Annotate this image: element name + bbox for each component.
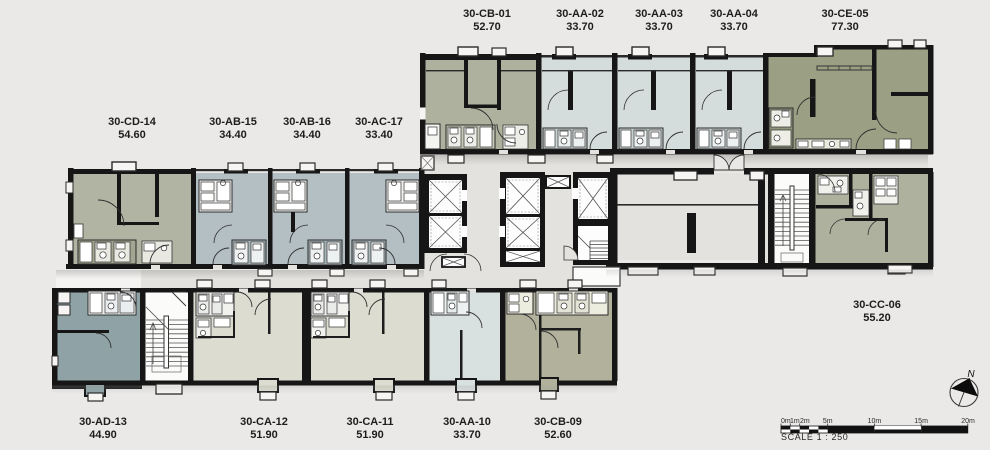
svg-text:30-CE-05: 30-CE-05 [821, 8, 868, 20]
svg-text:10m: 10m [868, 418, 882, 425]
svg-text:54.60: 54.60 [118, 129, 146, 141]
svg-text:30-AA-03: 30-AA-03 [635, 8, 683, 20]
svg-text:30-AB-15: 30-AB-15 [209, 116, 257, 128]
svg-text:30-CA-12: 30-CA-12 [240, 416, 288, 428]
svg-text:33.70: 33.70 [645, 21, 673, 33]
svg-text:30-AD-13: 30-AD-13 [79, 416, 127, 428]
svg-text:30-CA-11: 30-CA-11 [346, 416, 393, 428]
svg-text:30-AA-02: 30-AA-02 [556, 8, 604, 20]
svg-text:20m: 20m [961, 418, 975, 425]
svg-text:33.70: 33.70 [720, 21, 748, 33]
svg-text:5m: 5m [823, 418, 833, 425]
svg-text:51.90: 51.90 [356, 429, 384, 441]
svg-text:2m: 2m [800, 418, 810, 425]
svg-text:30-AB-16: 30-AB-16 [283, 116, 331, 128]
svg-text:30-AC-17: 30-AC-17 [355, 116, 403, 128]
svg-text:55.20: 55.20 [863, 312, 891, 324]
svg-text:34.40: 34.40 [219, 129, 247, 141]
svg-text:30-CB-09: 30-CB-09 [534, 416, 582, 428]
svg-text:77.30: 77.30 [831, 21, 859, 33]
svg-text:15m: 15m [914, 418, 928, 425]
svg-text:30-AA-10: 30-AA-10 [443, 416, 491, 428]
svg-text:SCALE 1 : 250: SCALE 1 : 250 [781, 432, 848, 442]
svg-text:1m: 1m [790, 418, 800, 425]
svg-text:30-CC-06: 30-CC-06 [853, 299, 901, 311]
svg-text:N: N [967, 369, 975, 380]
svg-text:52.70: 52.70 [473, 21, 501, 33]
svg-text:51.90: 51.90 [250, 429, 278, 441]
svg-text:30-CD-14: 30-CD-14 [108, 116, 157, 128]
svg-text:33.70: 33.70 [566, 21, 594, 33]
svg-text:44.90: 44.90 [89, 429, 117, 441]
svg-text:33.70: 33.70 [453, 429, 481, 441]
svg-text:52.60: 52.60 [544, 429, 572, 441]
svg-text:30-AA-04: 30-AA-04 [710, 8, 759, 20]
svg-text:34.40: 34.40 [293, 129, 321, 141]
svg-text:30-CB-01: 30-CB-01 [463, 8, 511, 20]
svg-text:33.40: 33.40 [365, 129, 393, 141]
